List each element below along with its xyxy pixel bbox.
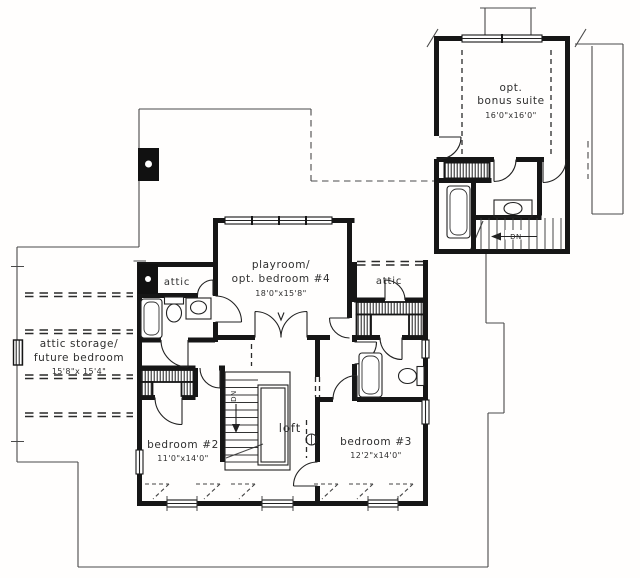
label-playroom-1: playroom/	[252, 259, 310, 271]
roof-outline	[11, 8, 623, 567]
toilet-bonus	[494, 200, 532, 217]
dim-bonus-suite: 16'0"x16'0"	[485, 111, 536, 120]
label-bonus-suite-2: bonus suite	[477, 95, 544, 107]
label-attic-storage-1: attic storage/	[40, 338, 119, 350]
door-playroom-right	[330, 318, 350, 338]
dim-bedroom2: 11'0"x14'0"	[157, 454, 208, 463]
down-arrow-main	[232, 424, 240, 433]
stair-main-dn-label: DN	[230, 390, 238, 402]
attic-right-walkin-closet	[357, 302, 424, 336]
label-bonus-suite-1: opt.	[500, 82, 523, 94]
down-arrow-bonus	[491, 233, 501, 241]
dormer-outline	[480, 8, 536, 35]
label-attic-storage-2: future bedroom	[34, 352, 124, 364]
chimney-icon	[138, 148, 159, 181]
toilet-right	[399, 367, 425, 386]
label-bedroom3: bedroom #3	[340, 436, 412, 448]
dim-playroom: 18'0"x15'8"	[255, 289, 306, 298]
bonus-staircase: DN	[481, 218, 561, 250]
chimney-icon-2	[138, 264, 158, 294]
door-loft-bedroom3	[294, 462, 318, 486]
bedroom2-closet	[141, 370, 194, 396]
label-attic-right: attic	[376, 276, 402, 287]
attic-storage-window	[14, 340, 23, 365]
break-slashes	[226, 29, 586, 458]
label-loft: loft	[279, 421, 302, 435]
floor-plan-svg: DN DN	[0, 0, 640, 578]
door-attic-right-closet-bottom	[380, 338, 402, 360]
door-attic-left	[198, 280, 214, 296]
door-atticroom-playroom	[216, 296, 242, 322]
stair-bonus-dn-label: DN	[510, 233, 522, 241]
bathtub-bonus	[447, 186, 470, 238]
bathtub-left	[141, 299, 162, 338]
label-playroom-2: opt. bedroom #4	[232, 273, 331, 285]
bathtub-right	[359, 353, 382, 397]
door-bonus-suite	[439, 137, 461, 159]
door-bonus-landing	[543, 160, 566, 183]
sink-left	[186, 298, 211, 319]
playroom-window-band	[225, 216, 332, 225]
room-labels: opt. bonus suite 16'0"x16'0" playroom/ o…	[34, 82, 545, 463]
dim-attic-storage: 15'8"x 15'4"	[52, 367, 106, 376]
roof-brace-marks	[145, 484, 413, 499]
floor-plan-sheet: DN DN	[0, 0, 640, 578]
dim-bedroom3: 12'2"x14'0"	[350, 451, 401, 460]
double-door-playroom	[255, 312, 307, 338]
label-attic-left: attic	[164, 277, 190, 288]
door-bedroom2-closet	[155, 398, 182, 425]
door-bonus-bath	[494, 160, 516, 182]
toilet-left	[165, 297, 184, 322]
label-bedroom2: bedroom #2	[147, 439, 219, 451]
bedroom2-side-window	[136, 450, 143, 474]
bonus-bath-closet	[445, 163, 490, 179]
bonus-suite-window-band	[462, 34, 542, 43]
door-bath-left	[161, 340, 188, 367]
door-bedroom2	[200, 368, 220, 388]
